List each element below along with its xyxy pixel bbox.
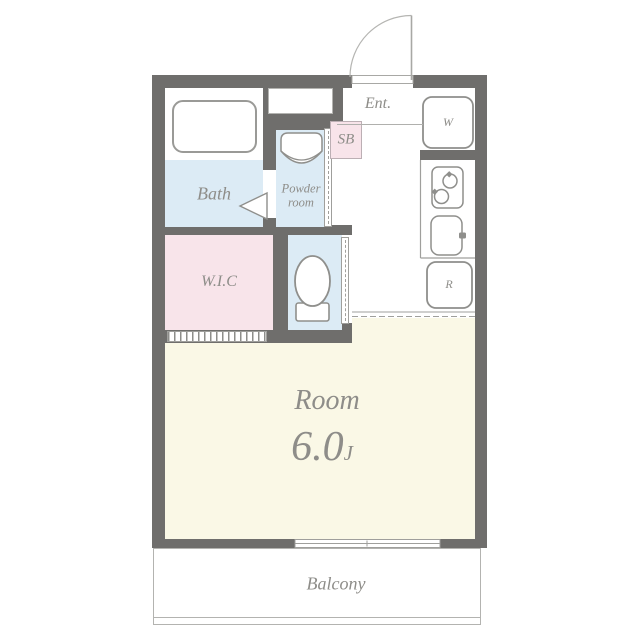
wall-left: [152, 75, 165, 548]
bathtub-area: [165, 88, 263, 160]
room-label: Room: [294, 385, 359, 417]
wall-top-left: [152, 75, 352, 88]
storage-box: [268, 88, 333, 114]
stove-icon: [432, 167, 463, 208]
entrance-label: Ent.: [365, 95, 391, 113]
entrance-door-icon: [350, 16, 413, 84]
balcony-inner-line: [153, 617, 481, 618]
wic-label: W.I.C: [201, 273, 237, 291]
room-size-value: 6.0: [291, 424, 344, 470]
powder-room: [276, 130, 325, 227]
wall-bottom-right: [440, 539, 487, 548]
toilet-door: [341, 237, 349, 324]
powder-room-label-line1: Powder: [282, 182, 321, 196]
bath-door-opening: [263, 170, 276, 218]
window-icon: [295, 540, 440, 548]
wall-beside-storage: [333, 88, 343, 114]
wic-door: [167, 331, 267, 342]
washer-label: W: [443, 116, 453, 130]
main-room-extension: [352, 318, 475, 343]
kitchen-boundary-line: [352, 312, 475, 317]
balcony-label: Balcony: [307, 574, 366, 595]
bath-label: Bath: [197, 184, 231, 205]
room-size-label: 6.0J: [291, 423, 353, 471]
wall-wic-toilet: [273, 235, 288, 330]
floor-plan: Ent. W SB Bath Powder room W.I.C R Room …: [0, 0, 640, 640]
powder-room-label: Powder room: [282, 182, 321, 211]
room-size-unit: J: [344, 441, 353, 465]
refrigerator-label: R: [445, 278, 452, 292]
powder-room-label-line2: room: [288, 196, 314, 210]
wall-bottom-left: [152, 539, 295, 548]
wall-kitchen-top: [420, 150, 475, 160]
wall-right: [475, 75, 487, 548]
toilet-room: [288, 235, 342, 330]
kitchen-counter-line: [421, 160, 476, 258]
shoe-box-label: SB: [338, 131, 355, 148]
sink-icon: [431, 216, 466, 255]
